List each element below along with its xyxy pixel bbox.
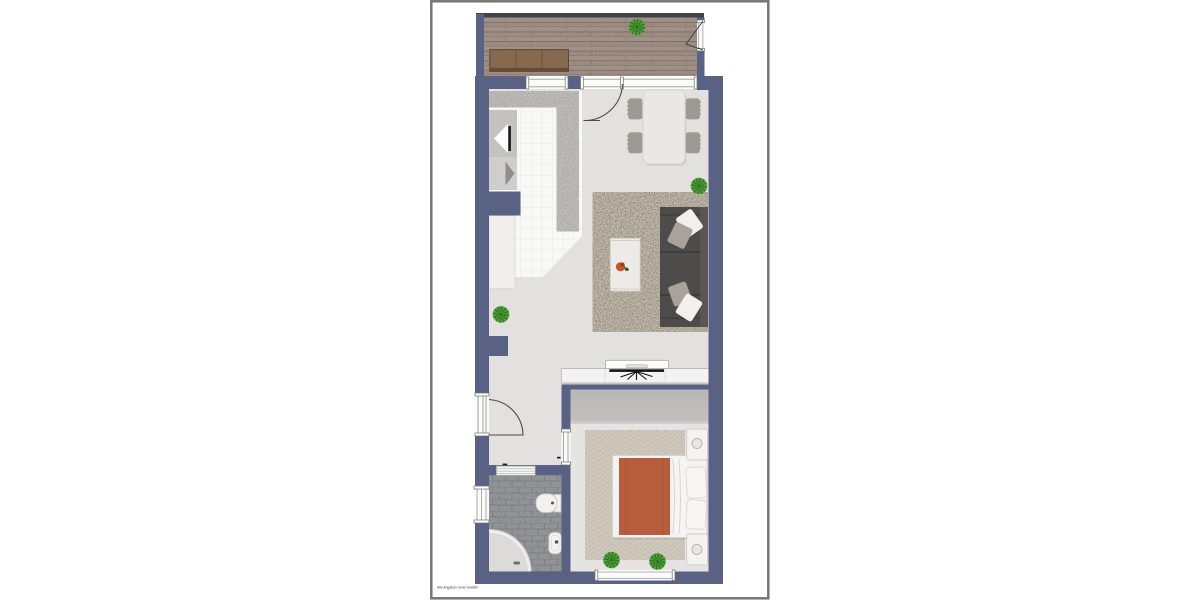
- svg-text:Alle Angaben ohne Gewähr: Alle Angaben ohne Gewähr: [437, 586, 479, 590]
